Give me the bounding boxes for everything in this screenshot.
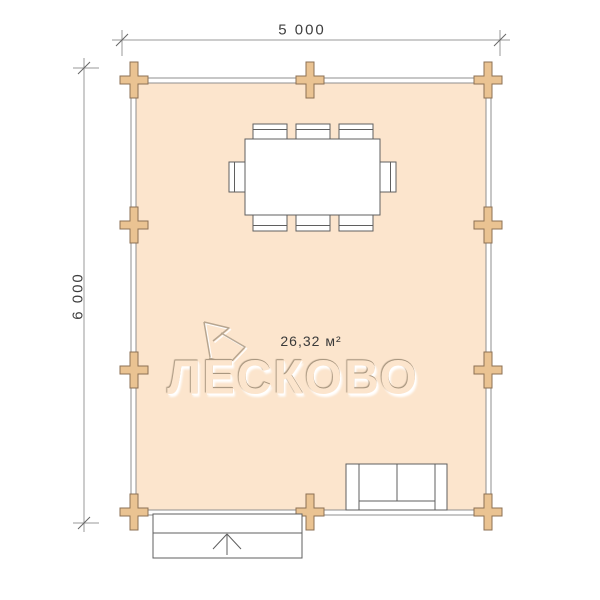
wall-left — [131, 68, 136, 523]
dimension-width-label: 5 000 — [278, 22, 326, 39]
area-label: 26,32 м² — [280, 333, 341, 349]
dining-table — [245, 139, 380, 215]
floor-plan-drawing — [0, 0, 600, 600]
sofa — [346, 464, 447, 510]
wall-right — [486, 68, 491, 523]
watermark-text: ЛЕСКОВО — [167, 351, 419, 406]
floor-plan-canvas: ЛЕСКОВО 5 000 6 000 26,32 м² — [0, 0, 600, 600]
dimension-height-label: 6 000 — [70, 272, 87, 320]
dining-set — [229, 124, 396, 231]
porch — [153, 514, 302, 558]
